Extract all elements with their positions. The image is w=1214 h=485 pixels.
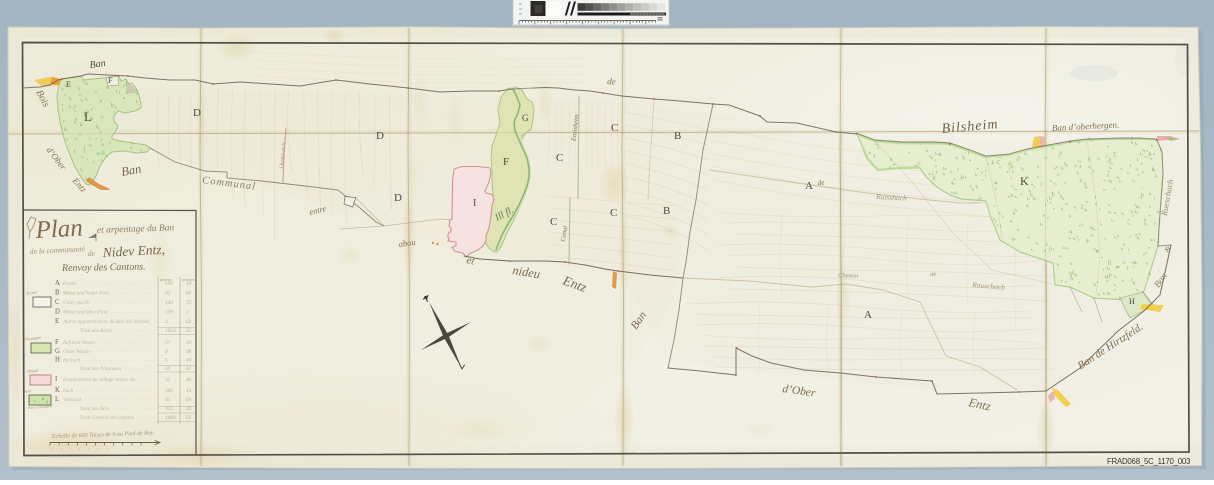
svg-text:5: 5 bbox=[165, 358, 168, 364]
svg-text:ı: ı bbox=[88, 447, 89, 451]
svg-text:14: 14 bbox=[186, 388, 192, 394]
svg-text:de: de bbox=[607, 76, 616, 87]
svg-text:61: 61 bbox=[186, 366, 192, 372]
svg-text:D: D bbox=[55, 309, 60, 316]
svg-text:Chemin: Chemin bbox=[838, 272, 859, 280]
svg-text:C: C bbox=[55, 299, 60, 306]
svg-text:A: A bbox=[864, 309, 872, 321]
svg-text:ı: ı bbox=[107, 447, 108, 451]
svg-text:A: A bbox=[55, 280, 60, 287]
svg-text:20: 20 bbox=[186, 406, 192, 412]
svg-text:K: K bbox=[55, 387, 60, 394]
svg-text:D: D bbox=[376, 130, 384, 142]
svg-text:Ban: Ban bbox=[89, 58, 106, 71]
svg-text:ı: ı bbox=[61, 447, 62, 451]
svg-text:140: 140 bbox=[165, 300, 173, 306]
svg-text:27: 27 bbox=[165, 340, 171, 346]
svg-text:Mittel und Nider-Feld: Mittel und Nider-Feld bbox=[62, 291, 109, 297]
svg-text:10: 10 bbox=[186, 281, 192, 287]
svg-text:109: 109 bbox=[165, 281, 173, 287]
svg-text:F: F bbox=[108, 76, 113, 85]
svg-text:60: 60 bbox=[186, 291, 192, 297]
svg-text:E: E bbox=[66, 80, 71, 89]
svg-text:ı: ı bbox=[70, 447, 71, 451]
svg-text:D: D bbox=[394, 192, 402, 204]
svg-text:Plan: Plan bbox=[34, 215, 84, 244]
svg-text:ı: ı bbox=[79, 447, 80, 451]
svg-text:98: 98 bbox=[186, 349, 192, 355]
svg-text:de: de bbox=[817, 178, 824, 187]
svg-text:56: 56 bbox=[186, 415, 192, 421]
svg-text:46: 46 bbox=[186, 377, 192, 383]
svg-text:C: C bbox=[610, 207, 617, 219]
svg-text:Autres appartenances du Ban de: Autres appartenances du Ban det Vieland bbox=[62, 319, 149, 325]
svg-text:K: K bbox=[1020, 174, 1029, 188]
svg-text:Mittel und Ober-Feld: Mittel und Ober-Feld bbox=[62, 310, 108, 316]
svg-text:de: de bbox=[930, 271, 937, 278]
svg-text:C: C bbox=[550, 216, 557, 228]
svg-text:Lach: Lach bbox=[62, 388, 74, 394]
svg-text:92: 92 bbox=[165, 291, 171, 297]
svg-text:40: 40 bbox=[186, 358, 192, 364]
svg-text:B: B bbox=[55, 290, 60, 297]
svg-text:B: B bbox=[674, 130, 681, 142]
svg-text:30: 30 bbox=[186, 340, 192, 346]
svg-text:ı: ı bbox=[52, 447, 53, 451]
svg-text:C: C bbox=[556, 152, 563, 164]
svg-text:8: 8 bbox=[165, 349, 168, 355]
svg-text:Total des Bois: Total des Bois bbox=[80, 406, 109, 412]
svg-text:G: G bbox=[55, 348, 60, 355]
svg-text:E: E bbox=[55, 318, 59, 325]
svg-text:Total Général des arpents: Total Général des arpents bbox=[80, 415, 134, 421]
svg-text:Emplacement du Village Verger: Emplacement du Village Verger &c bbox=[62, 377, 137, 383]
svg-text:1460: 1460 bbox=[165, 415, 176, 421]
svg-text:Ruisshach: Ruisshach bbox=[875, 192, 908, 203]
svg-text:A: A bbox=[805, 180, 813, 192]
svg-text:Renvoy des Cantons.: Renvoy des Cantons. bbox=[61, 262, 146, 274]
svg-text:69: 69 bbox=[165, 366, 171, 372]
svg-text:3: 3 bbox=[186, 310, 189, 316]
svg-text:75: 75 bbox=[186, 300, 192, 306]
svg-text:Unter das Ill: Unter das Ill bbox=[63, 300, 90, 306]
svg-text:Auf dem Wasen: Auf dem Wasen bbox=[62, 339, 95, 346]
svg-text:200: 200 bbox=[165, 388, 173, 394]
svg-text:G: G bbox=[522, 113, 529, 123]
svg-text:H: H bbox=[55, 357, 60, 364]
svg-text:2: 2 bbox=[165, 319, 168, 325]
svg-text:62: 62 bbox=[186, 319, 192, 325]
svg-text:332: 332 bbox=[165, 406, 173, 412]
svg-text:Total des Pâturages: Total des Pâturages bbox=[80, 366, 121, 372]
svg-text:de: de bbox=[88, 249, 96, 258]
svg-text:D: D bbox=[193, 107, 201, 119]
svg-text:Unter Wasen: Unter Wasen bbox=[63, 349, 90, 355]
svg-text:Total des Bains: Total des Bains bbox=[80, 328, 112, 334]
svg-text:Valtwald: Valtwald bbox=[63, 397, 82, 403]
svg-text:F: F bbox=[55, 339, 59, 346]
svg-text:Forêts: Forêts bbox=[62, 281, 77, 287]
svg-text:B: B bbox=[663, 205, 670, 217]
svg-text:ı: ı bbox=[98, 447, 99, 451]
svg-text:1054: 1054 bbox=[165, 328, 176, 334]
svg-text:35: 35 bbox=[186, 328, 192, 334]
svg-text:41: 41 bbox=[165, 397, 171, 403]
svg-text:Im Lach: Im Lach bbox=[62, 358, 81, 364]
svg-text:F: F bbox=[503, 156, 509, 168]
svg-text:I: I bbox=[473, 198, 476, 209]
svg-text:69: 69 bbox=[186, 397, 192, 403]
svg-text:31: 31 bbox=[165, 377, 171, 383]
svg-text:L: L bbox=[84, 109, 92, 124]
svg-text:109: 109 bbox=[165, 310, 173, 316]
svg-text:H: H bbox=[1129, 297, 1135, 306]
svg-text:L: L bbox=[55, 396, 59, 403]
svg-text:FRAD068_5C_1170_003: FRAD068_5C_1170_003 bbox=[1107, 457, 1190, 466]
